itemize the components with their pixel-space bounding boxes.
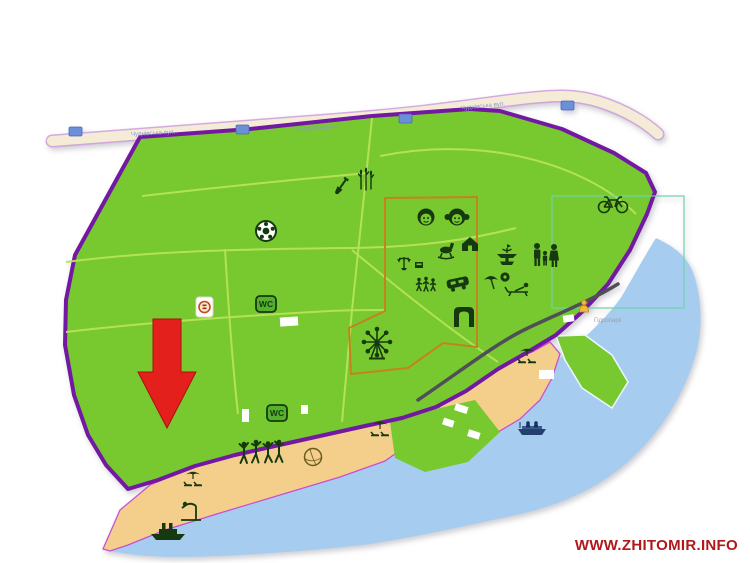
- wc-sign-icon: WC: [267, 405, 287, 421]
- wc-label: WC: [270, 408, 284, 418]
- map-canvas: WC WC Гідропарк: [0, 0, 750, 563]
- pool-icon: [500, 272, 509, 281]
- building: [539, 370, 554, 379]
- road-shield-icon: [399, 114, 412, 123]
- soccer-ball-icon: [256, 221, 276, 241]
- building: [280, 316, 299, 326]
- reeds-icon: [359, 168, 374, 190]
- wc-sign-icon: WC: [256, 296, 276, 312]
- kiosk-icon: [415, 262, 423, 268]
- food-point-icon: [196, 297, 213, 317]
- building: [301, 405, 308, 414]
- road-shield-icon: [236, 125, 249, 134]
- road-shield-icon: [69, 127, 82, 136]
- watermark: WWW.ZHITOMIR.INFO: [575, 537, 738, 554]
- road-shield-icon: [561, 101, 574, 110]
- boy-face-icon: [418, 209, 435, 226]
- poi-label: Гідропарк: [594, 318, 622, 324]
- park-map: WC WC Гідропарк: [0, 0, 750, 563]
- building: [242, 409, 249, 422]
- map-body: WC WC Гідропарк: [52, 96, 701, 557]
- wc-label: WC: [259, 299, 273, 309]
